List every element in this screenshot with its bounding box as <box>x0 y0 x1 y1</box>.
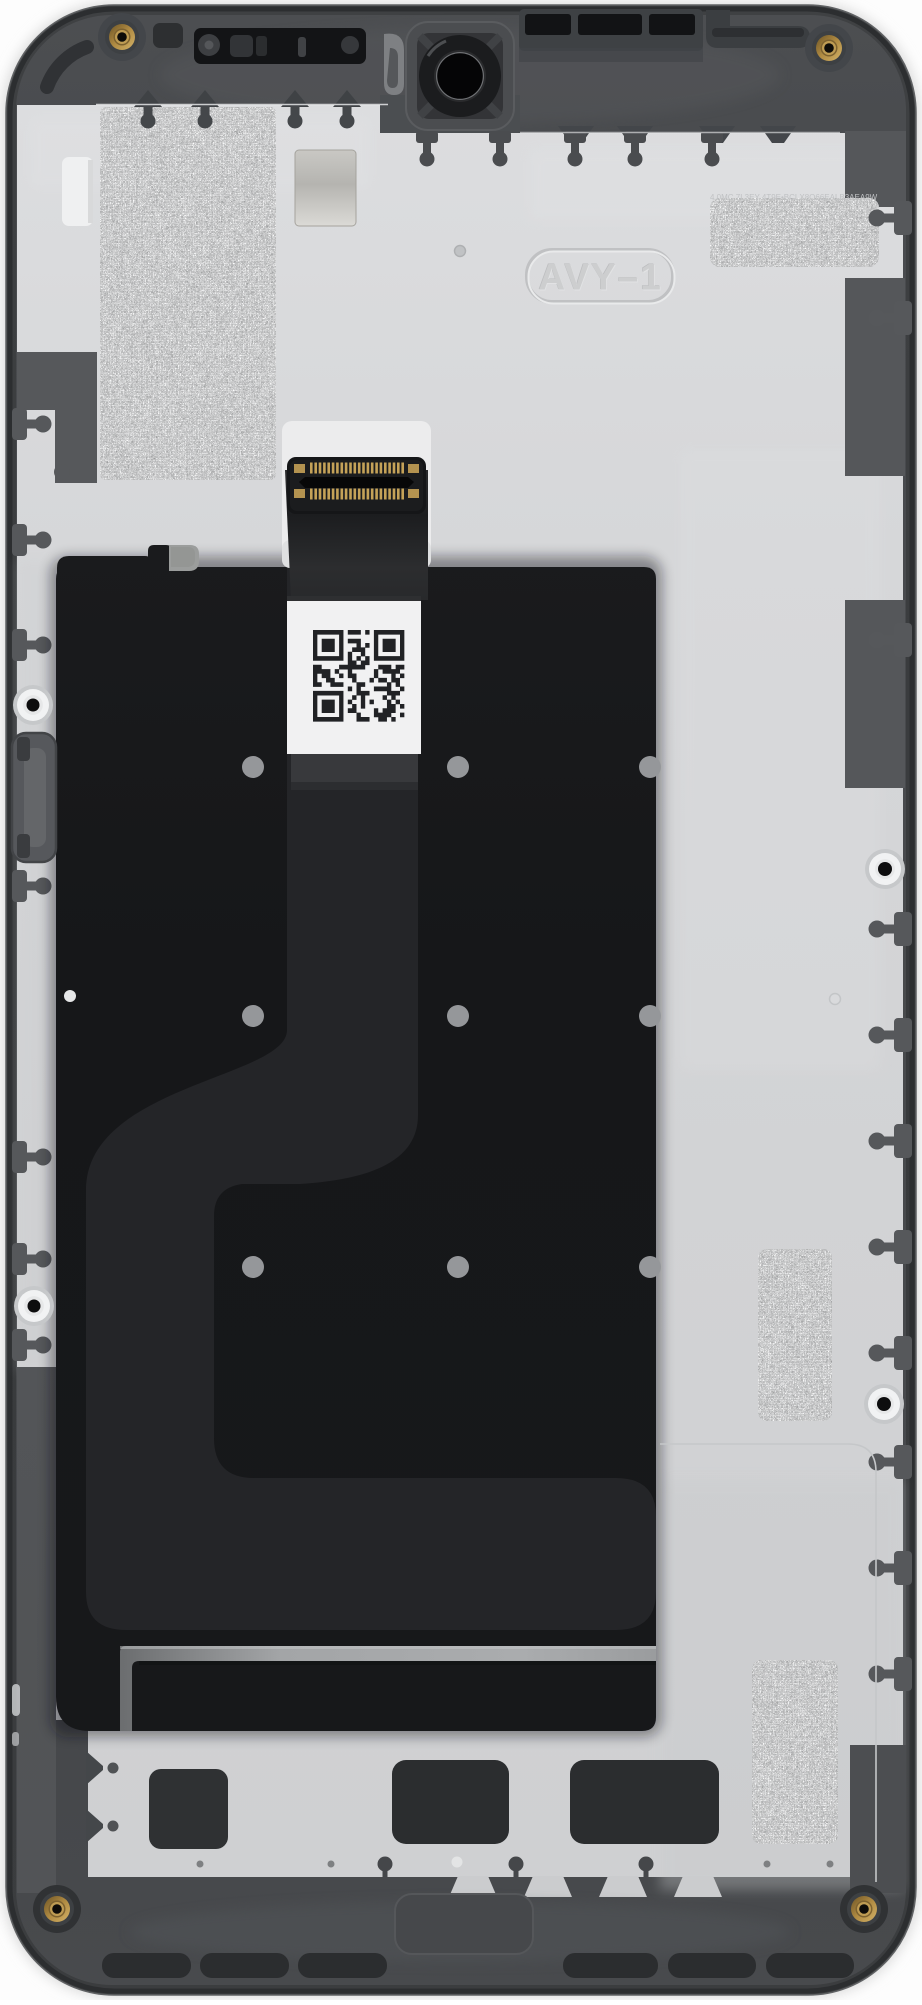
svg-text:4 0MC 7L3EY 4T9E•BCLX8O66EALB3: 4 0MC 7L3EY 4T9E•BCLX8O66EALB3AEA9W <box>710 193 878 202</box>
svg-text:AVY–1: AVY–1 <box>538 257 663 298</box>
